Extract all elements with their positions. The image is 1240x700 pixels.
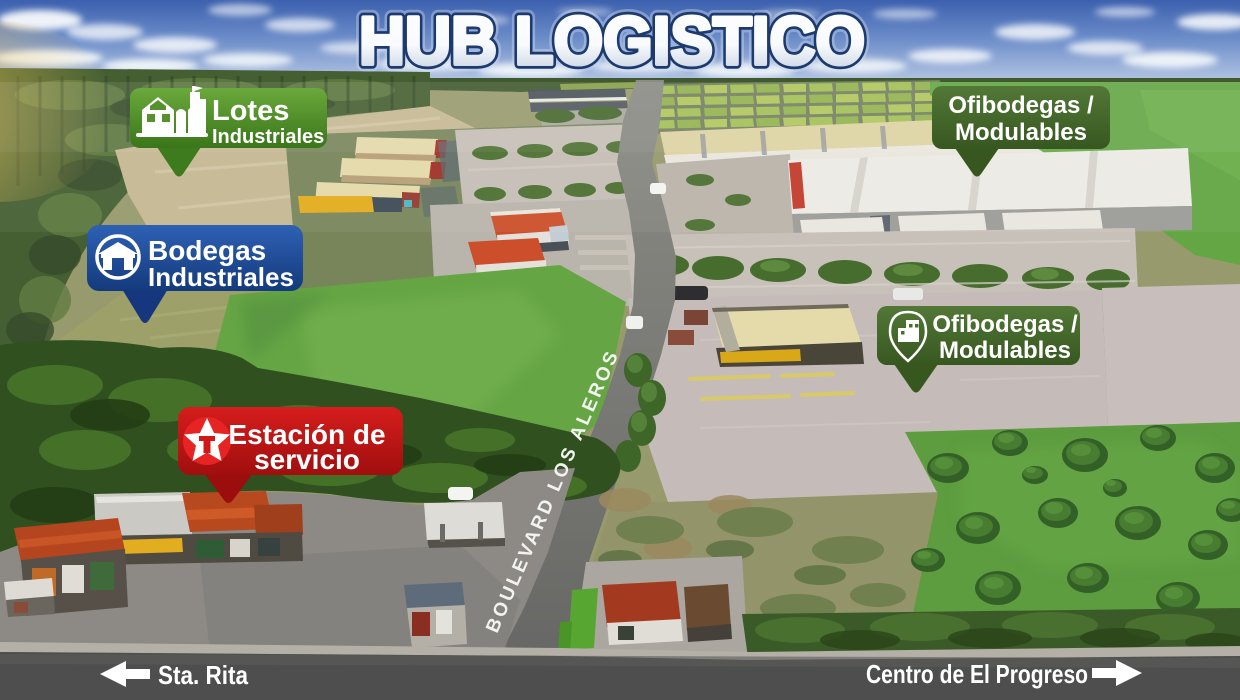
svg-text:Industriales: Industriales: [212, 126, 324, 148]
svg-text:Sta. Rita: Sta. Rita: [158, 660, 248, 690]
svg-text:Industriales: Industriales: [148, 262, 294, 292]
svg-text:Modulables: Modulables: [939, 337, 1071, 364]
svg-text:Ofibodegas /: Ofibodegas /: [932, 311, 1078, 338]
svg-text:Modulables: Modulables: [955, 119, 1087, 146]
svg-text:servicio: servicio: [254, 444, 360, 475]
svg-text:Ofibodegas /: Ofibodegas /: [948, 92, 1094, 119]
svg-text:Centro de El Progreso: Centro de El Progreso: [866, 659, 1088, 689]
svg-text:HUB LOGISTICO: HUB LOGISTICO: [359, 3, 865, 79]
svg-text:Lotes: Lotes: [212, 95, 289, 127]
